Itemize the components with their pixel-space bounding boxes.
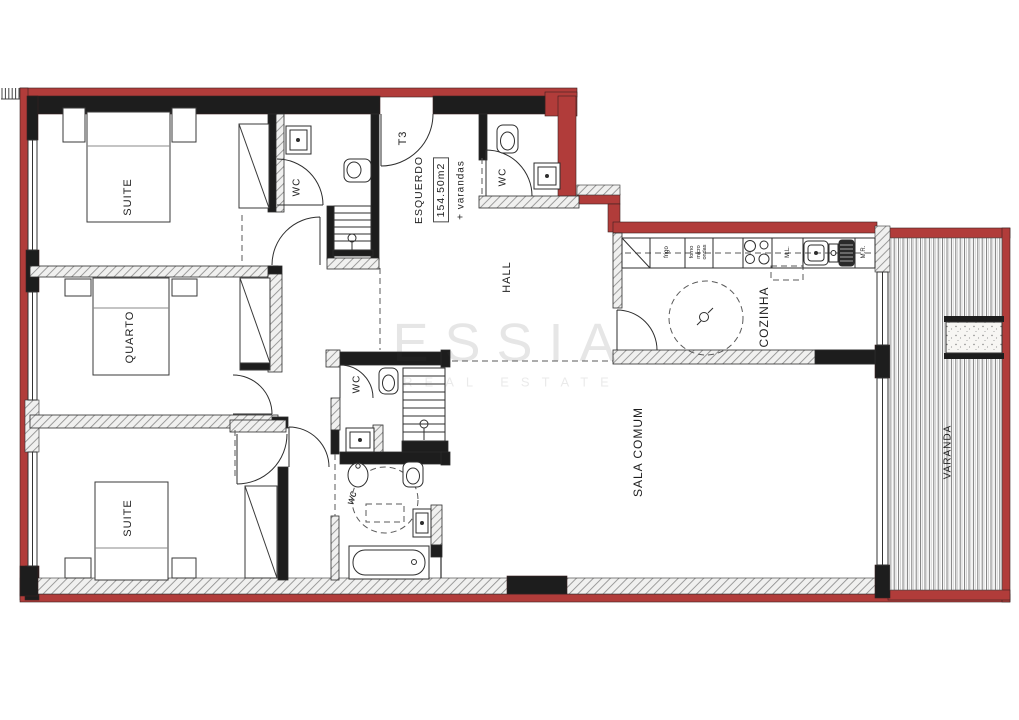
kitchen-label-fridge: frigo (664, 246, 670, 258)
watermark-tagline: REAL ESTATE (403, 375, 621, 390)
room-label-wc-entrance: WC (498, 168, 509, 187)
bathtub (349, 546, 429, 579)
balcony-deck (890, 238, 1002, 590)
window-suite-top (28, 140, 37, 250)
kitchen-turning-circle (669, 281, 743, 355)
window-suite-bottom (28, 452, 37, 566)
kitchen-counter (622, 238, 875, 325)
furniture (63, 108, 277, 580)
toilet-wc-suite (344, 159, 371, 182)
suite-top-door (272, 217, 320, 265)
bath-lobby-door (289, 427, 329, 467)
toilet-wc-entrance (497, 125, 518, 153)
wardrobe-suite-bottom (245, 486, 277, 578)
kitchen-label-dishwasher: M.L. (785, 246, 791, 258)
bidet-bathroom (348, 463, 368, 487)
area-label: 154.50m2 (433, 158, 449, 223)
washing-machine (839, 240, 854, 266)
room-label-suite-bottom: SUITE (122, 499, 134, 536)
room-label-kitchen: COZINHA (757, 287, 771, 348)
room-label-hall: HALL (501, 261, 513, 293)
room-label-living: SALA COMUM (631, 407, 645, 497)
toilet-bathroom (403, 462, 423, 487)
room-label-wc-suite: WC (292, 178, 303, 197)
room-label-wc-middle: WC (352, 375, 363, 394)
room-label-quarto: QUARTO (124, 311, 136, 364)
balcony (890, 238, 1004, 590)
kitchen-table-symbol (697, 308, 713, 325)
wardrobe-suite-top (239, 124, 269, 208)
window-living-balcony (877, 378, 888, 565)
room-label-suite-top: SUITE (122, 178, 134, 215)
unit-label: T3 (397, 131, 409, 146)
watermark-brand: ESSIA (392, 312, 631, 374)
sink-wc-entrance (534, 163, 560, 189)
sink-wc-middle (346, 428, 374, 452)
bathroom-dashed-zone (366, 504, 404, 522)
window-quarto (28, 292, 37, 400)
wardrobe-quarto (240, 278, 270, 370)
room-label-balcony: VARANDA (943, 425, 954, 480)
quarto-door (233, 375, 272, 414)
floor-plan: SUITE QUARTO SUITE WC WC WC wc HALL COZI… (0, 0, 1019, 720)
kitchen-label-washer: M.R. (861, 246, 867, 259)
sink-bathroom (413, 509, 431, 537)
balcony-planter (944, 316, 1004, 359)
site-tick-marks (1, 88, 22, 99)
kitchen-label-oven: forno micro ondas (689, 245, 709, 260)
cooktop (745, 241, 770, 265)
side-label: ESQUERDO (413, 156, 425, 224)
sink-wc-suite (286, 126, 311, 154)
window-kitchen-balcony (877, 272, 888, 345)
area-note-label: + varandas (456, 160, 467, 220)
staircase-upper (334, 206, 371, 250)
wc-entrance-door (486, 150, 532, 196)
